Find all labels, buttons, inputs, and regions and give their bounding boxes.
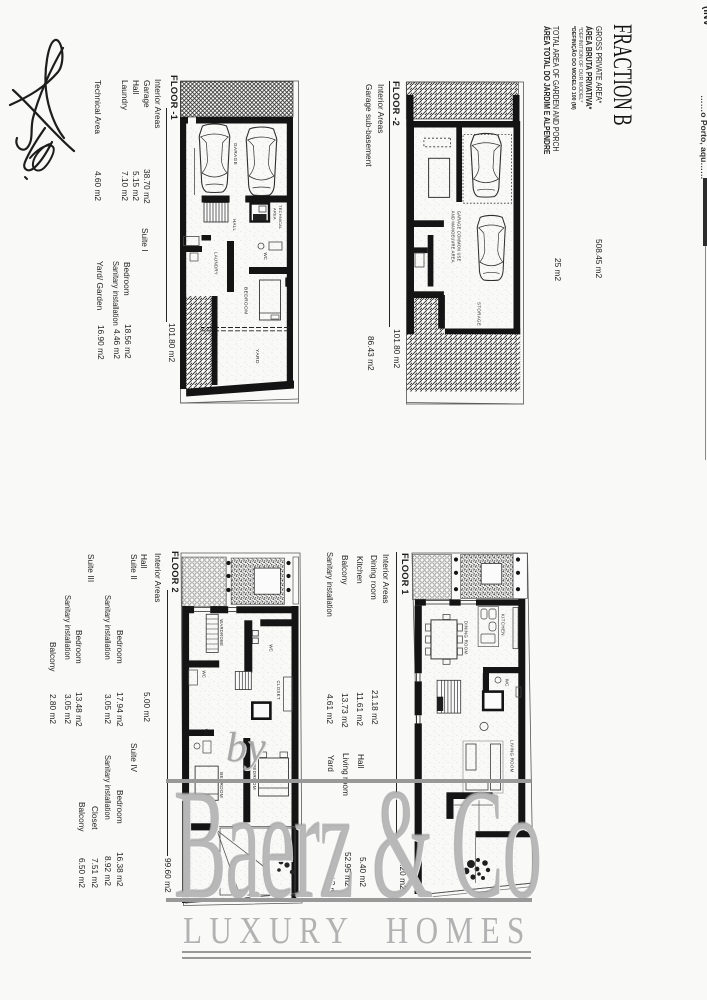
svg-text:DINING ROOM: DINING ROOM xyxy=(464,621,469,655)
svg-text:GARAGE: GARAGE xyxy=(233,143,238,165)
svg-text:AREA: AREA xyxy=(273,208,278,220)
svg-text:WARDROBE: WARDROBE xyxy=(219,619,224,646)
svg-text:GARAGE COMMON USE: GARAGE COMMON USE xyxy=(457,211,462,262)
svg-text:CLOSET: CLOSET xyxy=(276,681,281,700)
svg-text:AND MANOEUVRE AREA: AND MANOEUVRE AREA xyxy=(451,211,456,263)
svg-text:HALL: HALL xyxy=(232,219,237,231)
svg-text:WC: WC xyxy=(204,729,209,736)
svg-text:STORAGE: STORAGE xyxy=(477,302,482,326)
svg-text:WC: WC xyxy=(202,671,207,678)
svg-text:WC: WC xyxy=(263,253,268,260)
svg-text:WC: WC xyxy=(269,644,274,651)
svg-text:KITCHEN: KITCHEN xyxy=(501,614,506,636)
svg-text:LAUNDRY: LAUNDRY xyxy=(214,252,219,275)
svg-text:TECHNICAL: TECHNICAL xyxy=(278,205,283,230)
svg-text:WC: WC xyxy=(505,679,510,686)
